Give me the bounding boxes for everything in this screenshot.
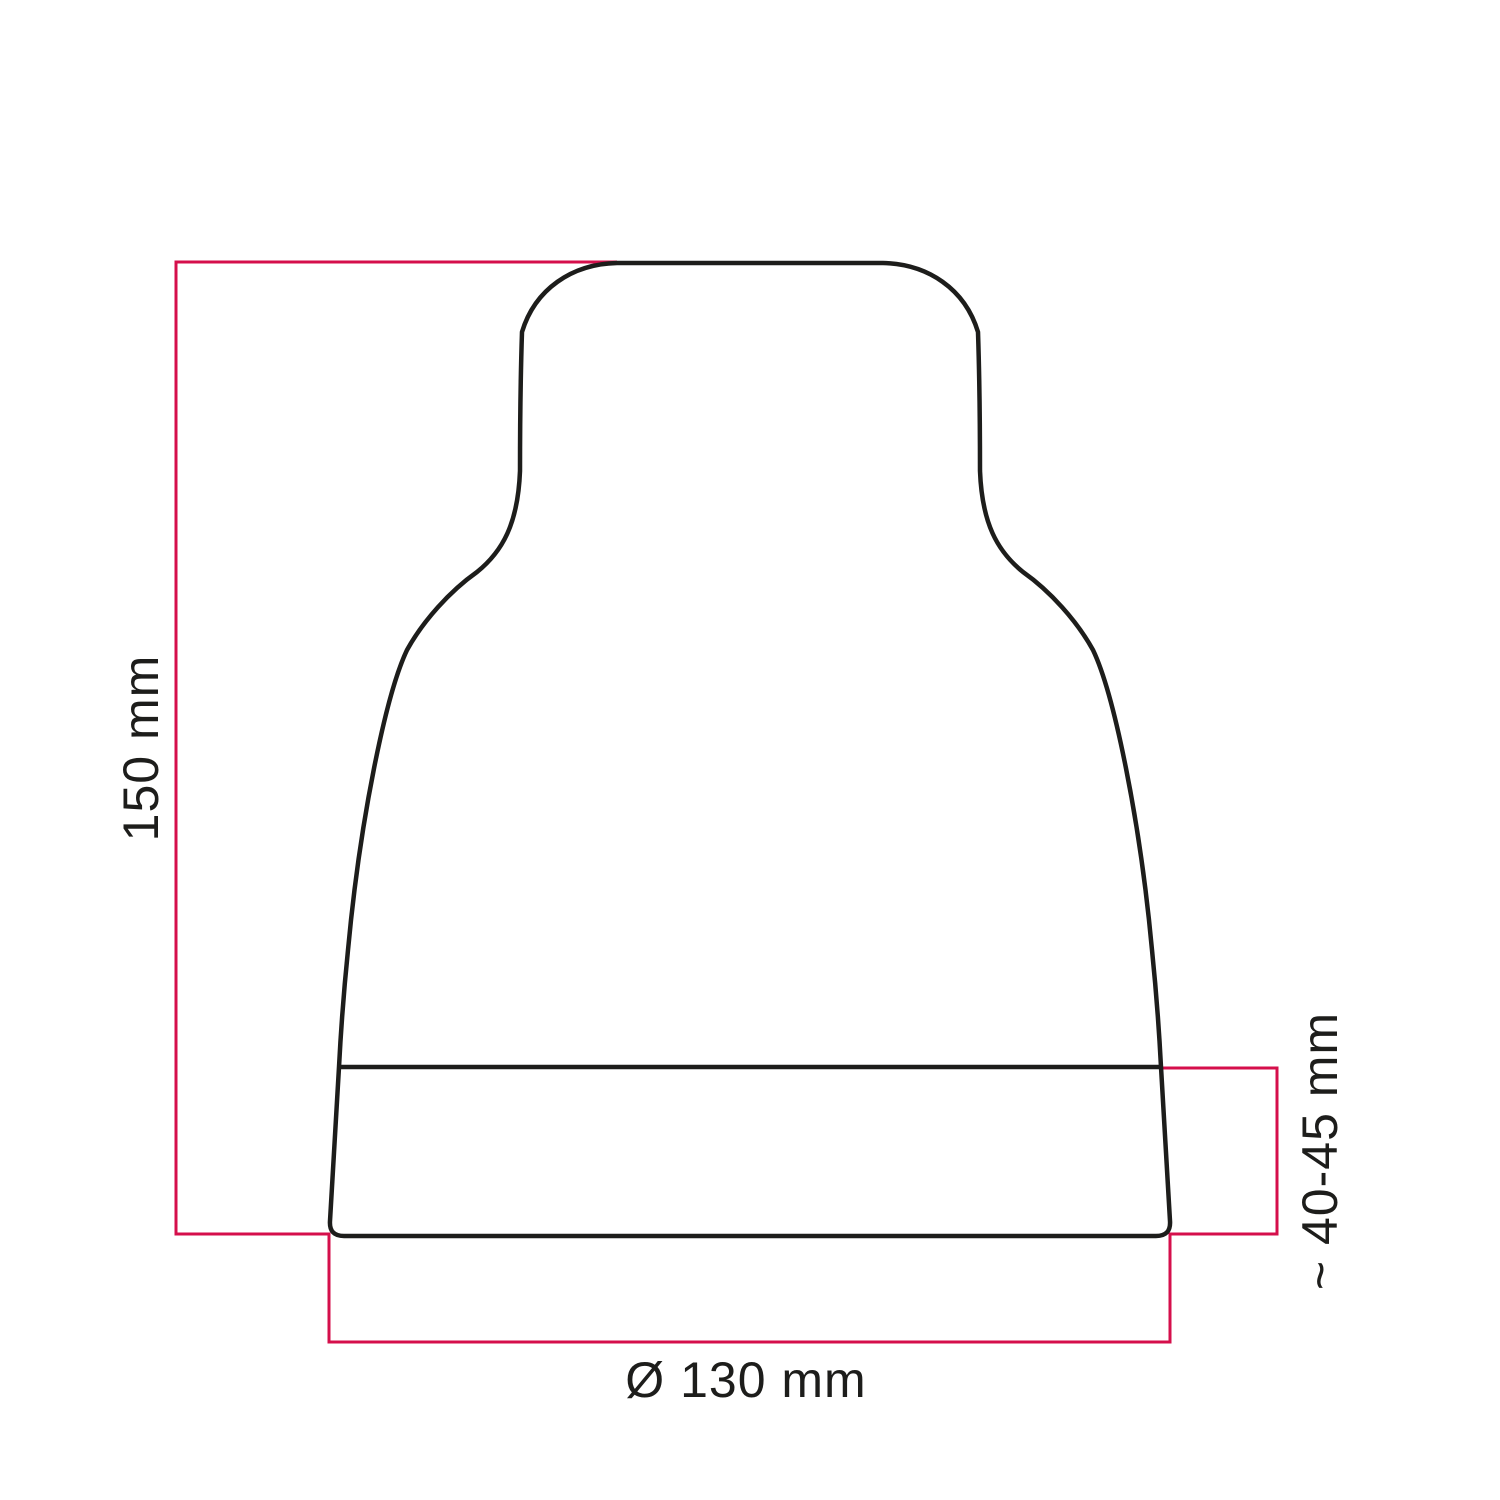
diagram-canvas: 150 mm ~ 40-45 mm Ø 130 mm bbox=[0, 0, 1500, 1500]
dimension-drawing bbox=[0, 0, 1500, 1500]
height-dimension-label: 150 mm bbox=[116, 655, 166, 842]
band-height-dimension-label: ~ 40-45 mm bbox=[1295, 1012, 1345, 1290]
lampshade-outline bbox=[330, 263, 1170, 1236]
dimension-lines bbox=[176, 262, 1277, 1342]
diameter-dimension-label: Ø 130 mm bbox=[625, 1355, 866, 1405]
